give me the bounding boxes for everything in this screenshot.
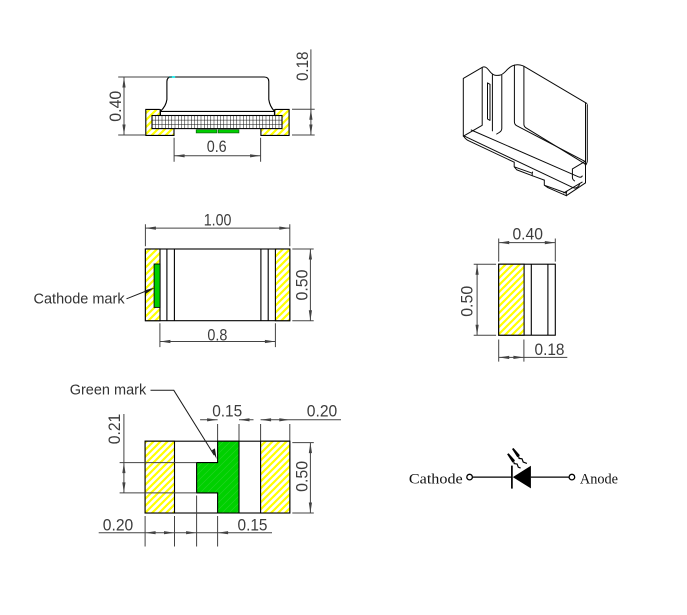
svg-text:0.6: 0.6 (207, 137, 227, 156)
svg-text:0.15: 0.15 (238, 515, 268, 534)
svg-text:0.40: 0.40 (512, 224, 543, 243)
svg-text:Anode: Anode (580, 472, 618, 488)
svg-text:0.50: 0.50 (458, 286, 477, 317)
svg-text:0.18: 0.18 (535, 340, 565, 359)
svg-text:0.40: 0.40 (106, 91, 125, 122)
svg-text:0.21: 0.21 (105, 414, 124, 445)
svg-text:0.18: 0.18 (293, 52, 312, 82)
svg-text:0.20: 0.20 (307, 402, 338, 421)
svg-text:0.15: 0.15 (212, 402, 242, 421)
svg-text:1.00: 1.00 (204, 210, 232, 229)
svg-text:0.8: 0.8 (207, 326, 227, 345)
svg-text:Cathode: Cathode (409, 472, 463, 488)
svg-text:Cathode mark: Cathode mark (34, 292, 126, 308)
svg-text:0.50: 0.50 (293, 270, 312, 301)
svg-text:Green mark: Green mark (70, 383, 147, 399)
svg-text:0.50: 0.50 (293, 461, 312, 492)
svg-text:0.20: 0.20 (103, 515, 134, 534)
